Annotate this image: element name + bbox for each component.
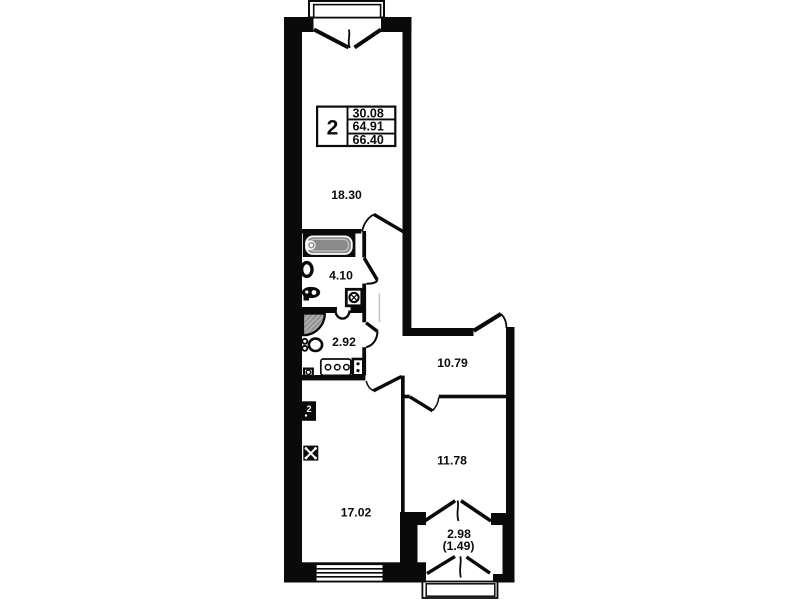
svg-text:66.40: 66.40 — [353, 133, 384, 147]
svg-text:(1.49): (1.49) — [443, 539, 475, 553]
svg-text:30.08: 30.08 — [353, 106, 384, 120]
svg-text:64.91: 64.91 — [353, 120, 384, 134]
svg-text:2: 2 — [306, 404, 311, 414]
svg-text:11.78: 11.78 — [437, 453, 467, 467]
svg-text:10.79: 10.79 — [437, 356, 468, 370]
svg-text:18.30: 18.30 — [331, 188, 362, 202]
svg-text:4.10: 4.10 — [329, 268, 353, 282]
svg-text:17.02: 17.02 — [341, 505, 372, 519]
svg-text:2: 2 — [327, 117, 339, 140]
svg-text:2.92: 2.92 — [332, 335, 356, 349]
